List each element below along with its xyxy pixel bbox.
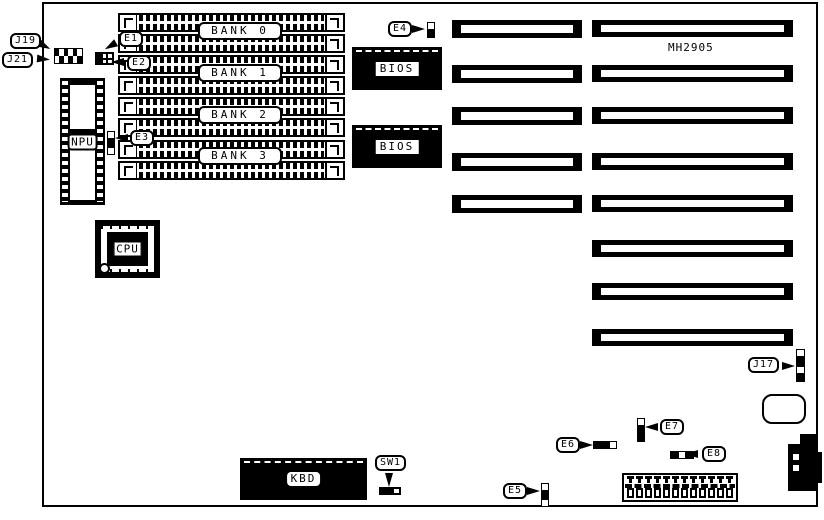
pointer-e7 <box>645 423 658 431</box>
jumper-e5 <box>541 483 549 503</box>
isa-slot <box>452 153 582 171</box>
cpu-label: CPU <box>113 242 142 257</box>
npu-socket: NPU <box>60 78 105 205</box>
pointer-sw1 <box>385 473 393 487</box>
callout-e3: E3 <box>130 130 154 146</box>
jumper-j17 <box>796 349 805 382</box>
bios-label: BIOS <box>376 62 419 76</box>
callout-e2: E2 <box>127 55 151 71</box>
callout-e6: E6 <box>556 437 580 453</box>
pointer-e5 <box>527 487 540 495</box>
jumper-e6 <box>593 441 611 449</box>
callout-j21: J21 <box>2 52 33 68</box>
bios-chip: BIOS <box>352 47 442 90</box>
isa-slot <box>452 20 582 38</box>
board-title: MH2905 <box>668 41 714 54</box>
pointer-j17 <box>782 362 795 370</box>
callout-e8: E8 <box>702 446 726 462</box>
bank-label: BANK 0 <box>198 22 282 40</box>
jumper-e3 <box>107 131 115 148</box>
pointer-e8 <box>685 450 698 458</box>
pointer-e4 <box>412 25 425 33</box>
callout-e1: E1 <box>119 31 143 47</box>
bank-label: BANK 2 <box>198 106 282 124</box>
isa-slot <box>592 195 793 212</box>
bank-label: BANK 3 <box>198 147 282 165</box>
isa-slot <box>592 283 793 300</box>
din-connector-bump <box>814 452 822 483</box>
isa-slot <box>452 107 582 125</box>
power-pins <box>627 476 733 484</box>
isa-slot <box>592 20 793 37</box>
pointer-e3 <box>115 134 128 142</box>
callout-e5: E5 <box>503 483 527 499</box>
jumper-block-j19-j21 <box>54 48 83 64</box>
isa-slot <box>452 65 582 83</box>
battery-outline <box>762 394 806 424</box>
din-connector-step <box>800 434 816 446</box>
din-pin <box>792 453 800 461</box>
power-connector <box>622 473 738 502</box>
pin1-dot <box>99 263 110 274</box>
kbd-label: KBD <box>286 471 322 487</box>
callout-e7: E7 <box>660 419 684 435</box>
din-pin <box>792 464 800 472</box>
pointer-j21 <box>37 54 51 63</box>
pointer-e2 <box>111 58 124 66</box>
jumper-e8 <box>670 451 685 459</box>
isa-slot <box>592 240 793 257</box>
kbd-connector: KBD <box>240 458 367 500</box>
npu-label: NPU <box>67 133 98 150</box>
bank-label: BANK 1 <box>198 64 282 82</box>
jumper-e7 <box>637 418 645 438</box>
bios-label: BIOS <box>376 140 419 154</box>
isa-slot <box>592 153 793 170</box>
pointer-e6 <box>580 441 593 449</box>
callout-e4: E4 <box>388 21 412 37</box>
isa-slot <box>592 107 793 124</box>
jumper-e4 <box>427 22 435 36</box>
callout-sw1: SW1 <box>375 455 406 471</box>
callout-j19: J19 <box>10 33 41 49</box>
bios-chip: BIOS <box>352 125 442 168</box>
isa-slot <box>452 195 582 213</box>
cpu-socket: CPU <box>95 220 160 278</box>
callout-j17: J17 <box>748 357 779 373</box>
sw1-switch <box>379 487 401 495</box>
motherboard-diagram: MH2905 BANK 0 BANK 1 BANK 2 BANK 3 NPU C… <box>0 0 824 520</box>
isa-slot <box>592 65 793 82</box>
isa-slot <box>592 329 793 346</box>
